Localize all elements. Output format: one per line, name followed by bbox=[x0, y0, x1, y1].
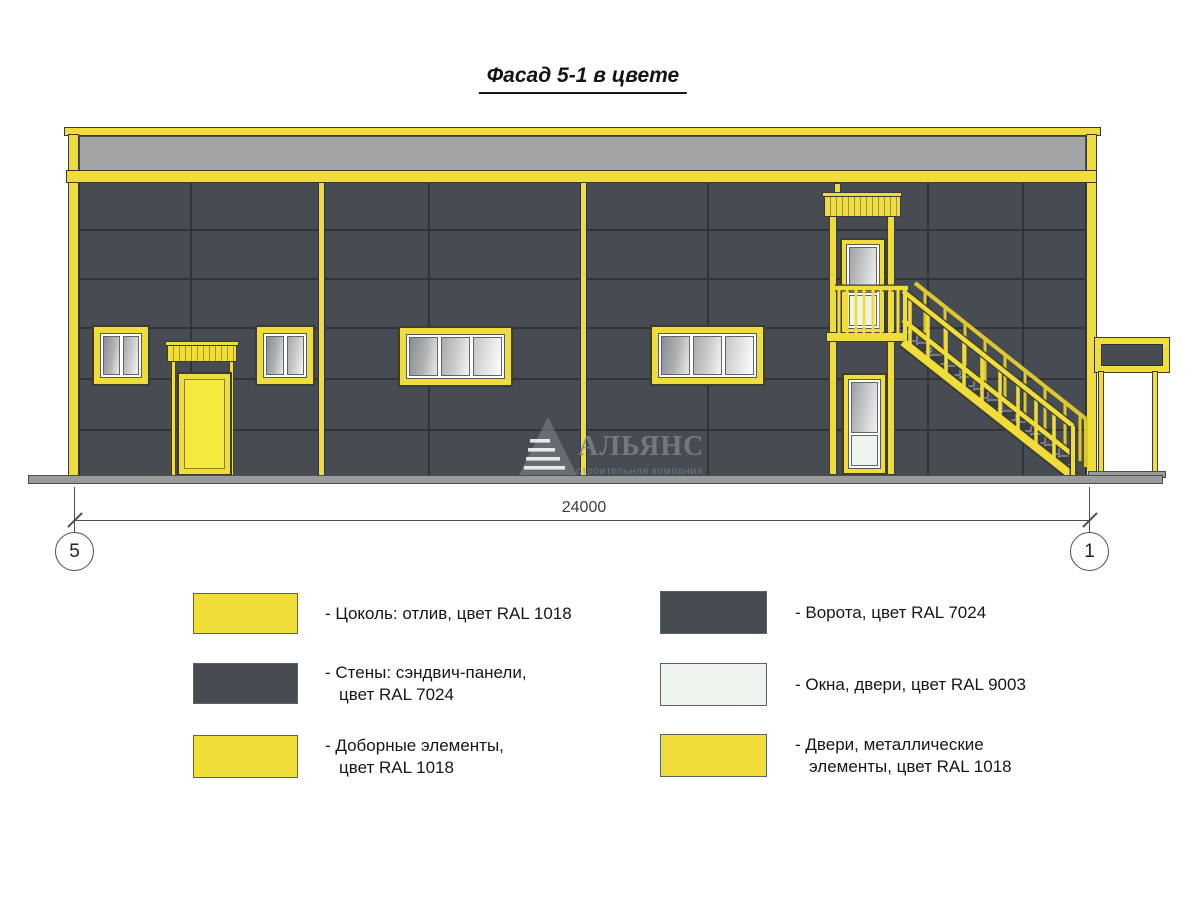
window-pane bbox=[123, 336, 140, 375]
panel-joint bbox=[1022, 183, 1024, 477]
legend-label: - Доборные элементы, цвет RAL 1018 bbox=[325, 735, 504, 778]
legend-swatch-walls bbox=[193, 663, 298, 704]
legend-swatch-plinth bbox=[193, 593, 298, 634]
roof-cap-strip bbox=[64, 127, 1101, 136]
entry-canopy-cap bbox=[165, 341, 239, 346]
side-canopy-post bbox=[1152, 371, 1158, 476]
window-pane bbox=[661, 336, 690, 375]
door-panel bbox=[851, 435, 878, 466]
door-panel bbox=[849, 295, 877, 326]
legend-label: - Окна, двери, цвет RAL 9003 bbox=[795, 663, 1026, 706]
entry-door-leaf bbox=[184, 379, 225, 469]
corner-column-left bbox=[68, 134, 79, 478]
facade-drawing: Фасад 5-1 в цвете АЛЬЯНС строительная ко… bbox=[0, 0, 1200, 900]
fascia-band bbox=[66, 170, 1097, 183]
legend-swatch-gates bbox=[660, 591, 767, 634]
side-canopy-post bbox=[1098, 371, 1104, 476]
panel-joint bbox=[927, 183, 929, 477]
legend-label: - Ворота, цвет RAL 7024 bbox=[795, 591, 986, 634]
tower-post-left bbox=[829, 216, 837, 475]
axis-bubble-5: 5 bbox=[55, 532, 94, 571]
window-pane bbox=[473, 337, 502, 376]
window-sash bbox=[658, 333, 757, 378]
legend-label: - Цоколь: отлив, цвет RAL 1018 bbox=[325, 593, 572, 634]
watermark: АЛЬЯНС строительная компания bbox=[510, 413, 705, 477]
extension-line-left bbox=[74, 487, 75, 533]
tower-lower-door bbox=[842, 373, 887, 475]
window-pane bbox=[441, 337, 470, 376]
side-canopy bbox=[1095, 338, 1169, 372]
window-pane bbox=[409, 337, 438, 376]
page-title: Фасад 5-1 в цвете bbox=[479, 64, 687, 94]
legend-label: - Стены: сэндвич-панели, цвет RAL 7024 bbox=[325, 663, 527, 704]
yellow-mullion bbox=[318, 183, 325, 477]
legend-swatch-doors bbox=[660, 734, 767, 777]
parapet-band bbox=[79, 136, 1086, 171]
legend-swatch-windows bbox=[660, 663, 767, 706]
extension-line-right bbox=[1089, 487, 1090, 533]
watermark-name: АЛЬЯНС bbox=[578, 431, 704, 463]
ground-line bbox=[28, 475, 1163, 484]
window-pane bbox=[287, 336, 305, 375]
entry-door bbox=[177, 372, 232, 476]
window-pane bbox=[266, 336, 284, 375]
axis-bubble-1: 1 bbox=[1070, 532, 1109, 571]
corner-column-right bbox=[1086, 134, 1097, 478]
watermark-pyramid-icon bbox=[518, 417, 578, 477]
window-3 bbox=[398, 326, 513, 387]
balcony-platform bbox=[826, 332, 907, 342]
window-1 bbox=[92, 325, 150, 386]
canopy-post bbox=[171, 361, 176, 476]
upper-balcony-door bbox=[840, 238, 886, 335]
window-sash bbox=[100, 333, 142, 378]
door-glass bbox=[851, 382, 878, 433]
window-2 bbox=[255, 325, 315, 386]
window-sash bbox=[406, 334, 505, 379]
door-sash bbox=[848, 379, 881, 469]
window-pane bbox=[103, 336, 120, 375]
legend-swatch-trim bbox=[193, 735, 298, 778]
window-sash bbox=[263, 333, 307, 378]
door-glass bbox=[849, 247, 877, 293]
dimension-label: 24000 bbox=[534, 499, 634, 517]
side-canopy-panel bbox=[1101, 344, 1163, 366]
window-4 bbox=[650, 325, 765, 386]
tower-canopy bbox=[824, 196, 901, 217]
window-pane bbox=[693, 336, 722, 375]
tower-post-right bbox=[887, 216, 895, 475]
dimension-line bbox=[74, 520, 1090, 521]
legend-label: - Двери, металлические элементы, цвет RA… bbox=[795, 734, 1012, 777]
window-pane bbox=[725, 336, 754, 375]
door-sash bbox=[846, 244, 880, 329]
